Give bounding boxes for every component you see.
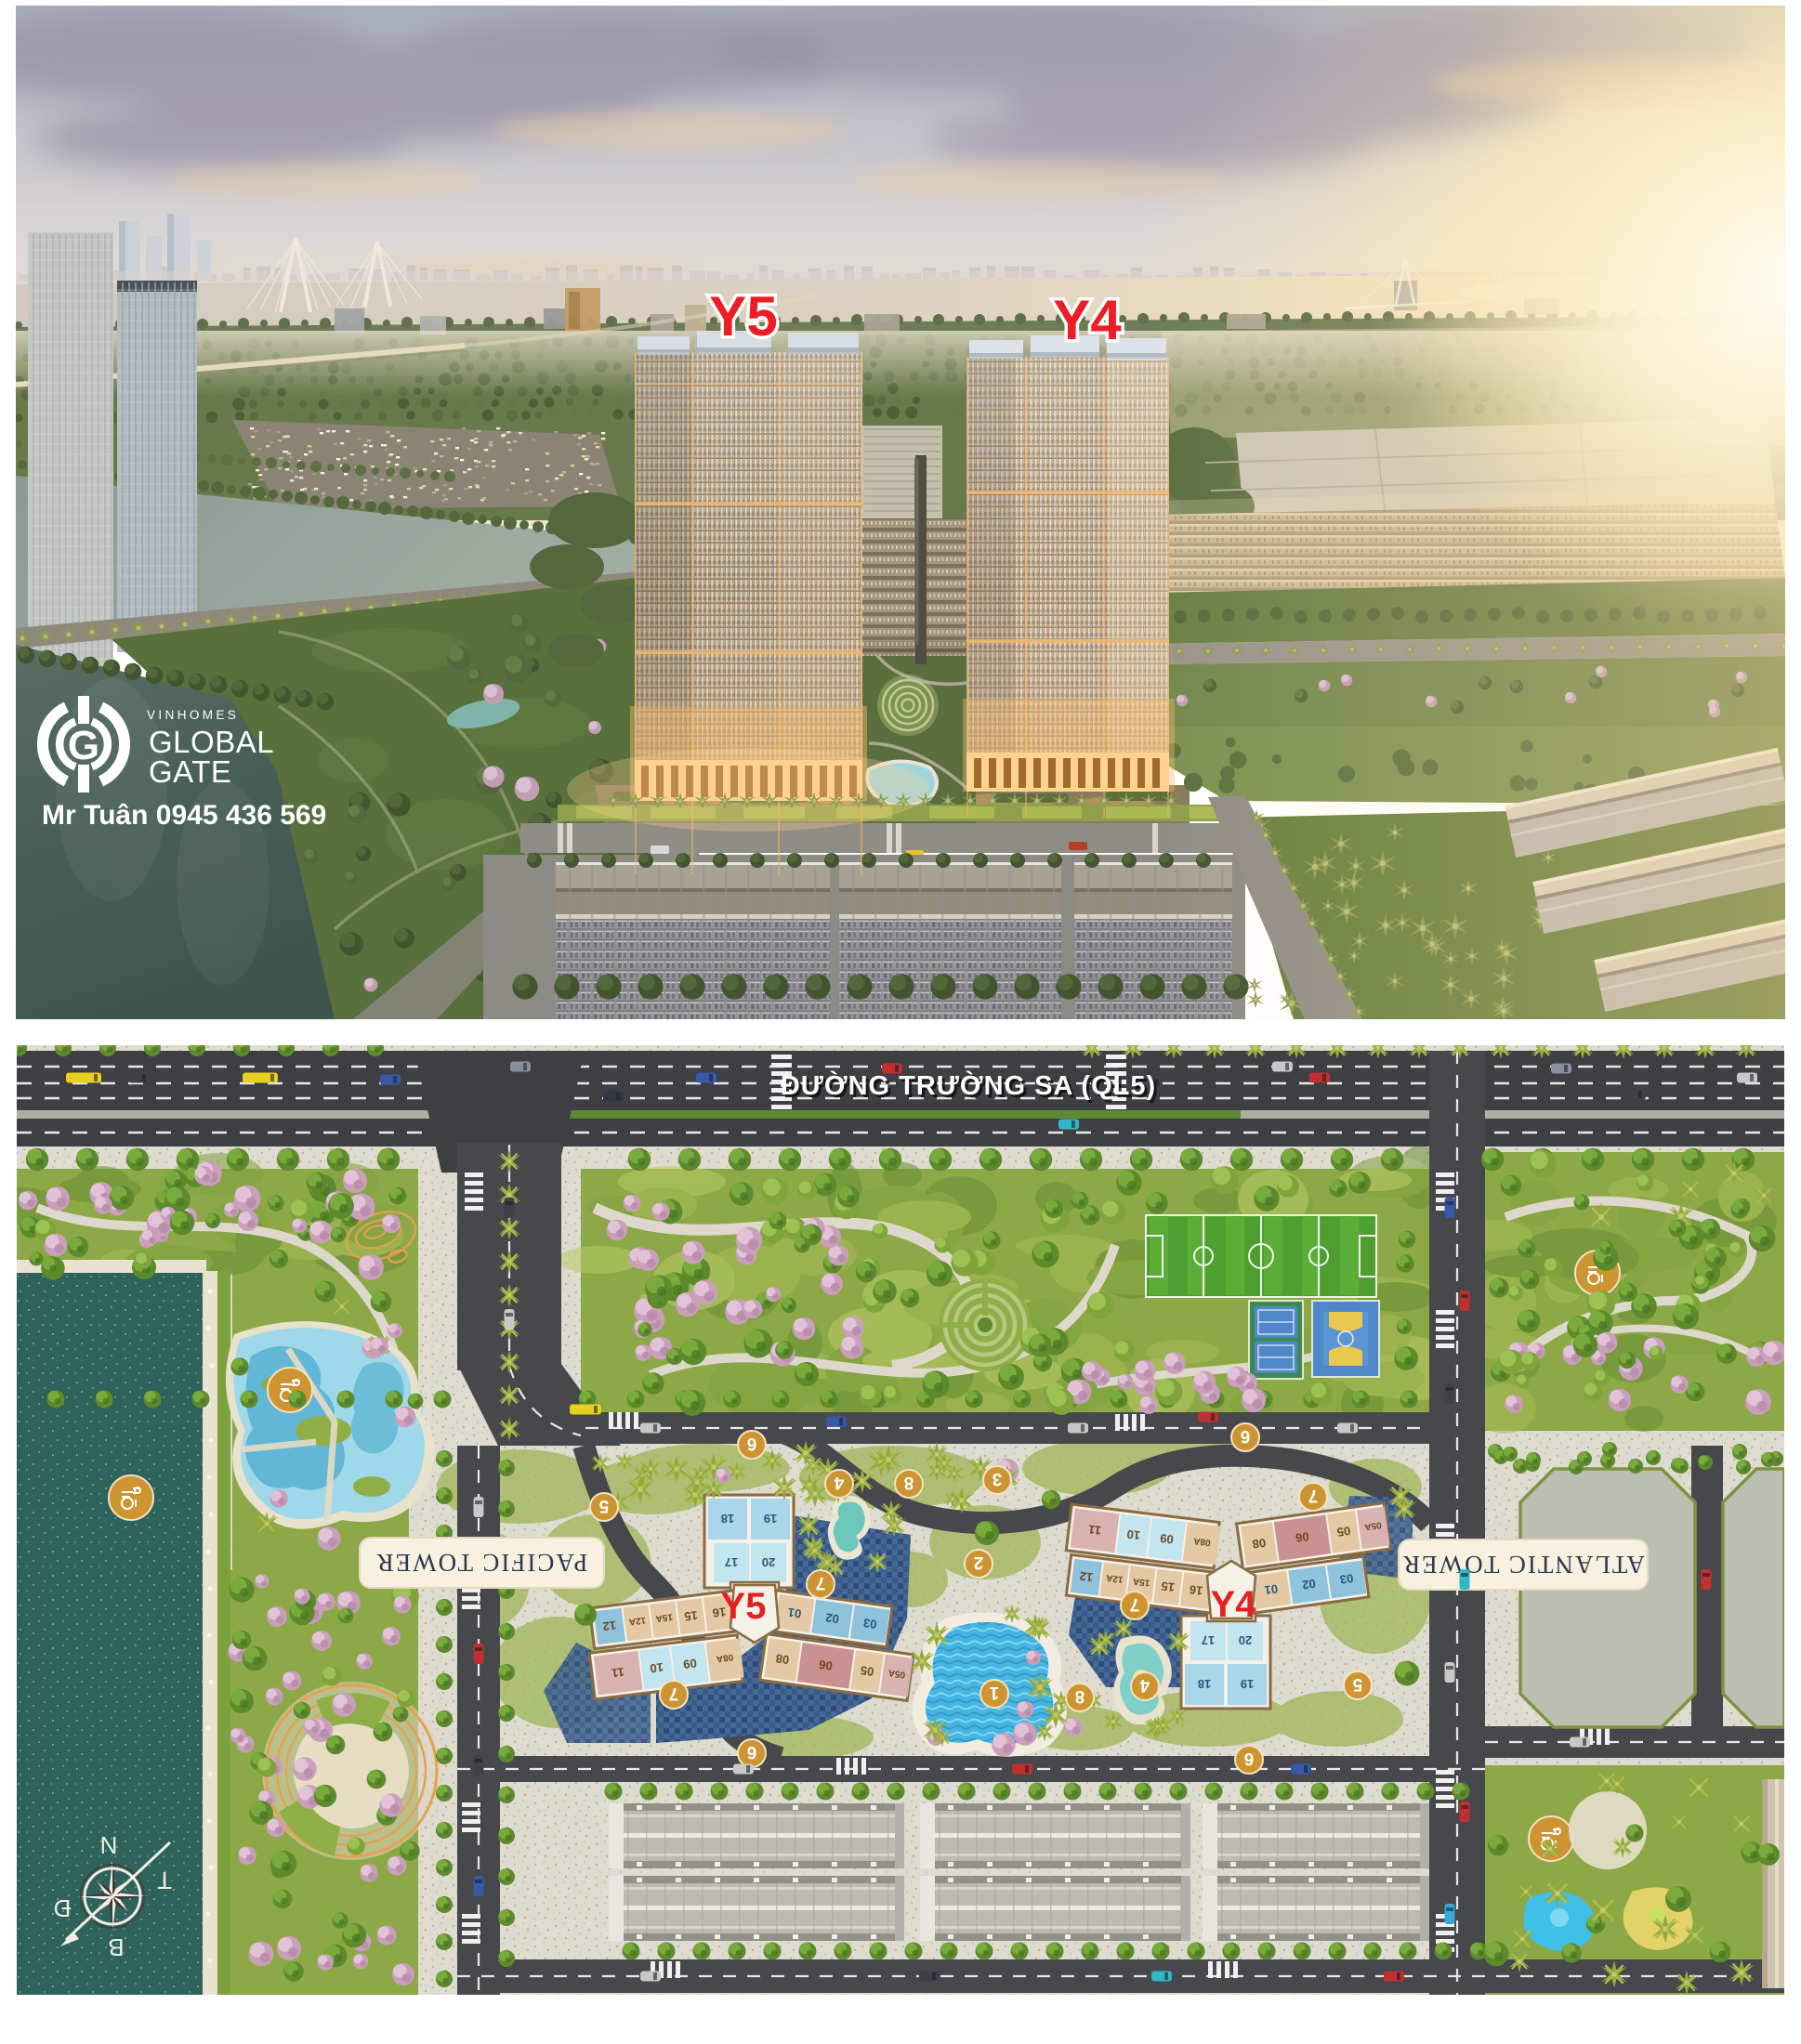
svg-text:Mr Tuân 0945 436 569: Mr Tuân 0945 436 569 — [42, 800, 326, 831]
svg-text:03: 03 — [862, 1616, 877, 1631]
svg-text:11: 11 — [611, 1665, 624, 1681]
svg-text:01: 01 — [787, 1605, 802, 1621]
svg-text:06: 06 — [818, 1657, 833, 1673]
svg-text:09: 09 — [1159, 1531, 1174, 1547]
svg-text:8: 8 — [904, 1473, 914, 1492]
svg-text:12: 12 — [1079, 1569, 1094, 1585]
svg-text:12A: 12A — [1106, 1572, 1124, 1584]
svg-text:7: 7 — [1308, 1486, 1319, 1505]
svg-text:16: 16 — [1189, 1582, 1203, 1598]
svg-text:08: 08 — [775, 1651, 790, 1667]
svg-text:17: 17 — [725, 1555, 738, 1569]
svg-text:ATLANTIC TOWER: ATLANTIC TOWER — [1401, 1551, 1645, 1579]
svg-text:18: 18 — [1198, 1677, 1211, 1691]
svg-text:02: 02 — [1301, 1577, 1316, 1592]
svg-text:Y5: Y5 — [721, 1586, 767, 1627]
svg-text:10: 10 — [650, 1660, 664, 1676]
svg-text:4: 4 — [834, 1473, 844, 1492]
svg-text:ĐƯỜNG TRƯỜNG SA (QL5): ĐƯỜNG TRƯỜNG SA (QL5) — [781, 1069, 1156, 1101]
svg-text:3: 3 — [993, 1469, 1003, 1488]
svg-text:15: 15 — [684, 1608, 699, 1624]
svg-text:15A: 15A — [655, 1611, 674, 1623]
svg-text:03: 03 — [1339, 1571, 1354, 1587]
svg-text:12: 12 — [602, 1618, 617, 1634]
svg-text:PACIFIC TOWER: PACIFIC TOWER — [375, 1549, 588, 1577]
svg-text:01: 01 — [1264, 1581, 1279, 1597]
svg-text:6: 6 — [747, 1434, 757, 1453]
svg-text:8: 8 — [1075, 1686, 1085, 1706]
svg-text:Y4: Y4 — [1211, 1584, 1257, 1625]
svg-text:T: T — [157, 1867, 172, 1894]
svg-text:08A: 08A — [716, 1652, 734, 1664]
svg-text:18: 18 — [721, 1512, 734, 1526]
svg-text:12A: 12A — [628, 1615, 647, 1627]
svg-text:09: 09 — [682, 1656, 697, 1671]
svg-text:B: B — [108, 1933, 124, 1961]
svg-text:7: 7 — [669, 1684, 679, 1703]
svg-text:Y4: Y4 — [1053, 289, 1122, 351]
svg-text:GATE: GATE — [149, 754, 231, 789]
svg-text:Y5: Y5 — [709, 285, 777, 347]
svg-text:2: 2 — [974, 1553, 984, 1572]
svg-text:7: 7 — [1130, 1594, 1140, 1614]
svg-text:6: 6 — [1244, 1749, 1255, 1768]
svg-text:4: 4 — [1139, 1675, 1150, 1695]
svg-text:5: 5 — [1352, 1674, 1362, 1694]
svg-text:05: 05 — [1336, 1524, 1351, 1540]
svg-text:N: N — [100, 1831, 118, 1859]
svg-text:11: 11 — [1087, 1523, 1101, 1539]
svg-text:6: 6 — [747, 1742, 757, 1762]
svg-text:20: 20 — [1239, 1633, 1252, 1647]
svg-text:05: 05 — [860, 1663, 874, 1679]
svg-text:VINHOMES: VINHOMES — [147, 708, 239, 722]
svg-text:17: 17 — [1202, 1633, 1215, 1647]
svg-text:1: 1 — [989, 1683, 999, 1702]
svg-text:10: 10 — [1126, 1527, 1141, 1543]
svg-text:Đ: Đ — [54, 1894, 72, 1922]
svg-text:5: 5 — [598, 1496, 609, 1515]
svg-text:06: 06 — [1295, 1529, 1309, 1545]
svg-text:15: 15 — [1161, 1579, 1176, 1595]
svg-text:08A: 08A — [1193, 1535, 1212, 1547]
svg-text:19: 19 — [1241, 1677, 1254, 1691]
svg-text:08: 08 — [1252, 1536, 1267, 1552]
svg-text:G: G — [68, 723, 99, 768]
svg-text:6: 6 — [1241, 1426, 1251, 1446]
svg-text:15A: 15A — [1132, 1576, 1150, 1588]
svg-text:20: 20 — [762, 1555, 775, 1569]
svg-text:7: 7 — [816, 1573, 826, 1592]
svg-text:02: 02 — [824, 1610, 839, 1626]
svg-text:19: 19 — [764, 1512, 777, 1526]
